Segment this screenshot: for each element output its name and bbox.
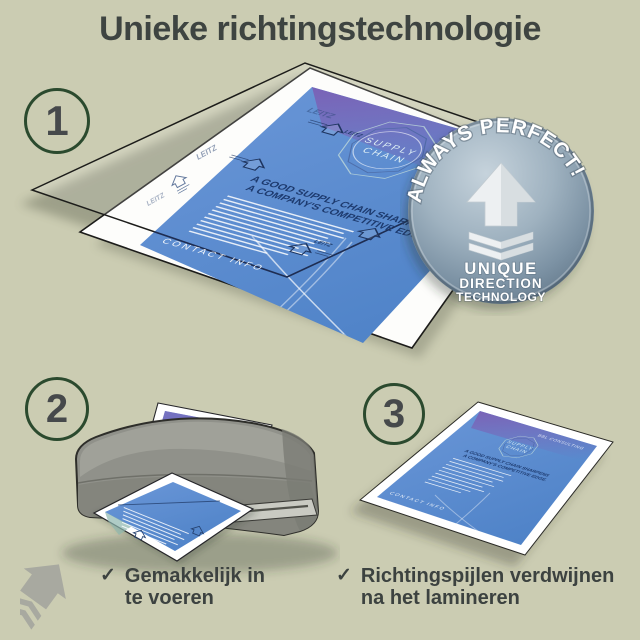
step-3-number: 3 <box>363 383 425 445</box>
checklist-1-line2: te voeren <box>125 587 214 609</box>
checklist-2-line2: na het lamineren <box>361 587 520 609</box>
badge-line-technology: TECHNOLOGY <box>456 290 546 304</box>
udt-badge: ALWAYS PERFECT! UNIQUE DIRECTION TECHNOL… <box>400 106 600 316</box>
step-1-number: 1 <box>24 88 90 154</box>
infographic-canvas: Unieke richtingstechnologie <box>0 0 640 640</box>
step-2-label: 2 <box>46 387 68 432</box>
checklist-item-arrows-disappear: ✓ Richtingspijlen verdwijnen na het lami… <box>336 565 614 610</box>
check-icon: ✓ <box>100 565 116 586</box>
checklist-text-1: Gemakkelijk in te voeren <box>125 565 265 610</box>
badge-line-direction: DIRECTION <box>459 276 542 291</box>
checklist-2-line1: Richtingspijlen verdwijnen <box>361 565 614 587</box>
feed-arrow-icon <box>20 549 80 630</box>
check-icon: ✓ <box>336 565 352 586</box>
step-1-label: 1 <box>45 97 68 145</box>
badge-caption: UNIQUE DIRECTION TECHNOLOGY <box>456 260 546 304</box>
step-2-number: 2 <box>25 377 89 441</box>
checklist-1-line1: Gemakkelijk in <box>125 565 265 587</box>
checklist-item-easy-feed: ✓ Gemakkelijk in te voeren <box>100 565 265 610</box>
checklist-text-2: Richtingspijlen verdwijnen na het lamine… <box>361 565 614 610</box>
step-3-label: 3 <box>383 392 405 437</box>
page-title: Unieke richtingstechnologie <box>0 10 640 49</box>
